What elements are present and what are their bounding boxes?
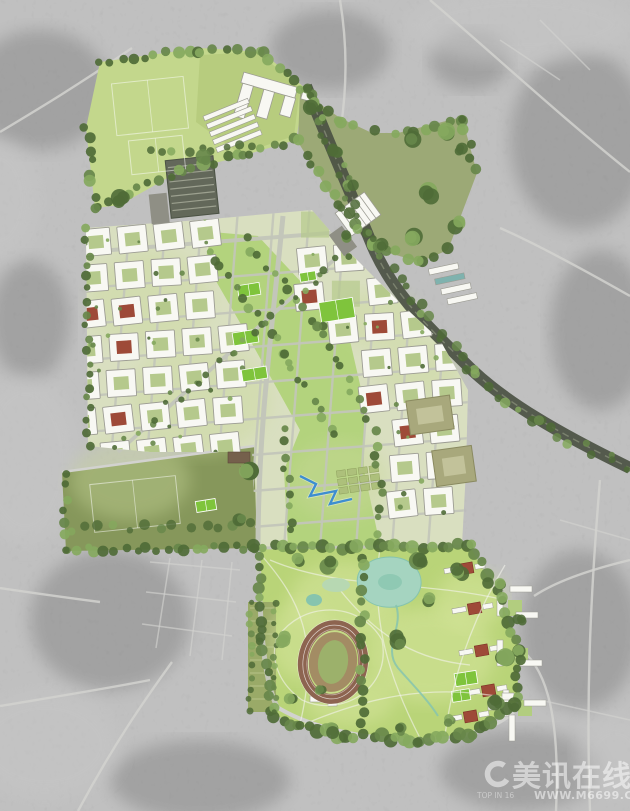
olive-building-complex (432, 445, 477, 486)
perimeter-block (398, 345, 429, 374)
perimeter-block (143, 366, 174, 396)
perimeter-block (153, 221, 185, 251)
perimeter-block (423, 486, 454, 516)
pond (306, 594, 322, 606)
marsh (322, 578, 350, 592)
perimeter-block (103, 404, 135, 434)
perimeter-block (114, 260, 145, 289)
perimeter-block (111, 296, 143, 326)
watermark-logo-text: 美讯在线 (512, 759, 630, 793)
perimeter-block (386, 489, 418, 519)
watermark-url: WWW.M6699.COM (534, 789, 630, 802)
perimeter-block (182, 327, 213, 356)
perimeter-block (145, 330, 176, 359)
masterplan-aerial-map: 美讯在线 TOP IN 16 WWW.M6699.COM (0, 0, 630, 811)
perimeter-block (148, 293, 179, 323)
perimeter-block (213, 395, 244, 425)
perimeter-block (363, 313, 395, 342)
sports-court (299, 271, 316, 282)
perimeter-block (151, 258, 186, 287)
watermark-small-text: TOP IN 16 (476, 791, 514, 800)
perimeter-block (189, 216, 221, 249)
perimeter-block (106, 331, 140, 361)
olive-building-complex (406, 395, 454, 435)
perimeter-block (361, 348, 392, 377)
perimeter-block (176, 398, 208, 428)
perimeter-block (184, 291, 215, 320)
aerial-masterplan-image: 美讯在线 TOP IN 16 WWW.M6699.COM (0, 0, 630, 811)
perimeter-block (117, 224, 149, 254)
perimeter-block (106, 369, 137, 398)
sports-court (451, 689, 470, 703)
